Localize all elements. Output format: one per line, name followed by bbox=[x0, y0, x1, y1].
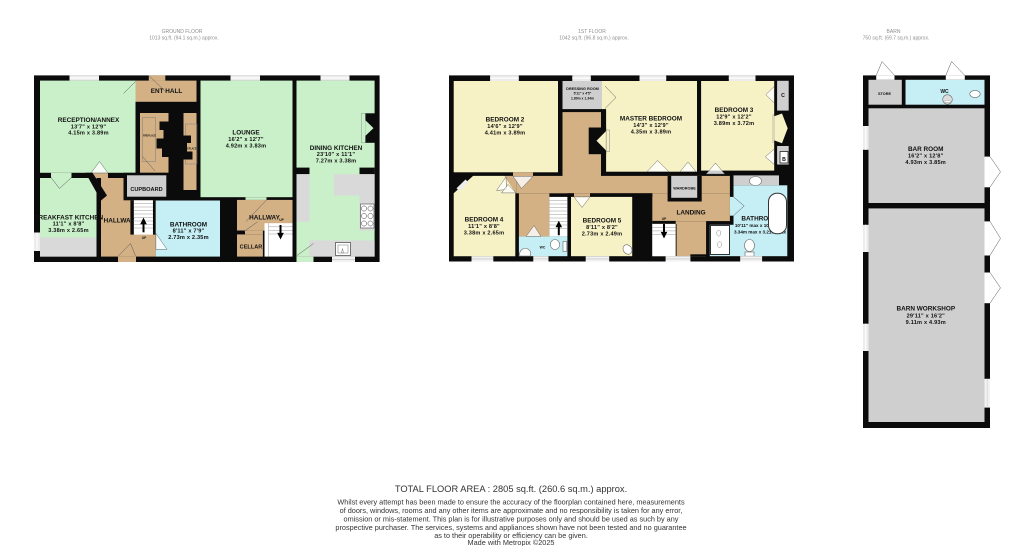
svg-text:HALLWAY: HALLWAY bbox=[104, 218, 135, 225]
svg-text:FIREPLACE: FIREPLACE bbox=[183, 148, 196, 151]
svg-text:WC: WC bbox=[940, 89, 949, 95]
svg-text:BEDROOM 3: BEDROOM 3 bbox=[715, 107, 754, 114]
svg-text:RECEPTION/ANNEX: RECEPTION/ANNEX bbox=[58, 117, 120, 124]
svg-text:MASTER BEDROOM: MASTER BEDROOM bbox=[620, 116, 682, 123]
svg-text:LOUNGE: LOUNGE bbox=[232, 130, 260, 137]
svg-text:CELLAR: CELLAR bbox=[240, 244, 263, 250]
svg-text:DRESSING ROOM: DRESSING ROOM bbox=[566, 87, 599, 91]
svg-text:29'11" x 16'2": 29'11" x 16'2" bbox=[907, 313, 946, 319]
svg-text:4.41m x 3.89m: 4.41m x 3.89m bbox=[485, 131, 526, 137]
svg-text:BATHROOM: BATHROOM bbox=[170, 221, 207, 228]
svg-text:2.73m x 2.49m: 2.73m x 2.49m bbox=[582, 232, 623, 238]
svg-text:DINING KITCHEN: DINING KITCHEN bbox=[310, 145, 363, 152]
svg-text:5'11" x 4'5": 5'11" x 4'5" bbox=[574, 92, 592, 96]
svg-text:8'11" x 8'2": 8'11" x 8'2" bbox=[586, 225, 618, 231]
svg-text:WARDROBE: WARDROBE bbox=[673, 187, 696, 191]
svg-text:12'9" x 12'2": 12'9" x 12'2" bbox=[716, 115, 752, 121]
svg-text:STORE: STORE bbox=[878, 92, 891, 96]
svg-text:4.15m x 3.89m: 4.15m x 3.89m bbox=[68, 130, 109, 136]
svg-text:TOTAL FLOOR AREA : 2805 sq.ft.: TOTAL FLOOR AREA : 2805 sq.ft. (260.6 sq… bbox=[395, 484, 627, 494]
svg-text:3.38m x 2.65m: 3.38m x 2.65m bbox=[48, 228, 89, 234]
svg-text:4.93m x 3.85m: 4.93m x 3.85m bbox=[905, 160, 946, 166]
svg-text:3.38m x 2.65m: 3.38m x 2.65m bbox=[464, 231, 505, 237]
svg-text:WC: WC bbox=[540, 246, 546, 250]
svg-text:ENT HALL: ENT HALL bbox=[151, 88, 183, 95]
svg-text:1042 sq.ft. (96.8 sq.m.) appro: 1042 sq.ft. (96.8 sq.m.) approx. bbox=[559, 36, 628, 42]
svg-text:16'2" x 12'8": 16'2" x 12'8" bbox=[908, 153, 944, 159]
svg-text:9.11m x 4.93m: 9.11m x 4.93m bbox=[906, 320, 946, 326]
svg-text:4.92m x 3.83m: 4.92m x 3.83m bbox=[226, 144, 267, 150]
svg-text:BEDROOM 5: BEDROOM 5 bbox=[583, 218, 622, 225]
svg-text:Made with Metropix ©2025: Made with Metropix ©2025 bbox=[468, 538, 555, 546]
svg-text:14'6" x 12'9": 14'6" x 12'9" bbox=[487, 124, 523, 130]
svg-text:BREAKFAST KITCHEN: BREAKFAST KITCHEN bbox=[34, 215, 104, 222]
svg-text:11'1" x 8'8": 11'1" x 8'8" bbox=[53, 222, 85, 228]
svg-text:BEDROOM 2: BEDROOM 2 bbox=[486, 117, 525, 124]
svg-text:23'10" x 11'1": 23'10" x 11'1" bbox=[317, 152, 356, 158]
svg-text:C: C bbox=[781, 93, 785, 99]
svg-text:14'3" x 12'9": 14'3" x 12'9" bbox=[633, 123, 669, 129]
svg-text:1.80m x 1.34m: 1.80m x 1.34m bbox=[571, 97, 594, 101]
svg-text:16'2" x 12'7": 16'2" x 12'7" bbox=[228, 137, 264, 143]
svg-text:4.35m x 3.89m: 4.35m x 3.89m bbox=[631, 130, 672, 136]
svg-text:BEDROOM 4: BEDROOM 4 bbox=[465, 217, 504, 224]
svg-text:1013 sq.ft. (94.1 sq.m.) appro: 1013 sq.ft. (94.1 sq.m.) approx. bbox=[149, 36, 218, 42]
svg-text:1ST FLOOR: 1ST FLOOR bbox=[578, 29, 606, 35]
svg-text:LANDING: LANDING bbox=[676, 209, 705, 216]
svg-text:CUPBOARD: CUPBOARD bbox=[130, 187, 162, 193]
svg-text:BARN: BARN bbox=[887, 29, 901, 35]
svg-text:B: B bbox=[782, 157, 786, 163]
svg-text:GROUND FLOOR: GROUND FLOOR bbox=[162, 29, 203, 35]
svg-text:750 sq.ft. (69.7 sq.m.) approx: 750 sq.ft. (69.7 sq.m.) approx. bbox=[863, 36, 930, 42]
svg-text:7.27m x 3.38m: 7.27m x 3.38m bbox=[316, 159, 357, 165]
svg-text:8'11" x 7'9": 8'11" x 7'9" bbox=[173, 229, 205, 235]
svg-text:FIREPLACE: FIREPLACE bbox=[143, 135, 156, 138]
svg-text:HALLWAY: HALLWAY bbox=[249, 215, 280, 222]
svg-text:BAR ROOM: BAR ROOM bbox=[908, 146, 944, 153]
svg-text:3.89m x 3.72m: 3.89m x 3.72m bbox=[714, 121, 755, 127]
svg-text:BARN WORKSHOP: BARN WORKSHOP bbox=[897, 306, 956, 313]
svg-text:11'1" x 8'8": 11'1" x 8'8" bbox=[468, 224, 500, 230]
svg-text:2.73m x 2.35m: 2.73m x 2.35m bbox=[168, 235, 209, 241]
